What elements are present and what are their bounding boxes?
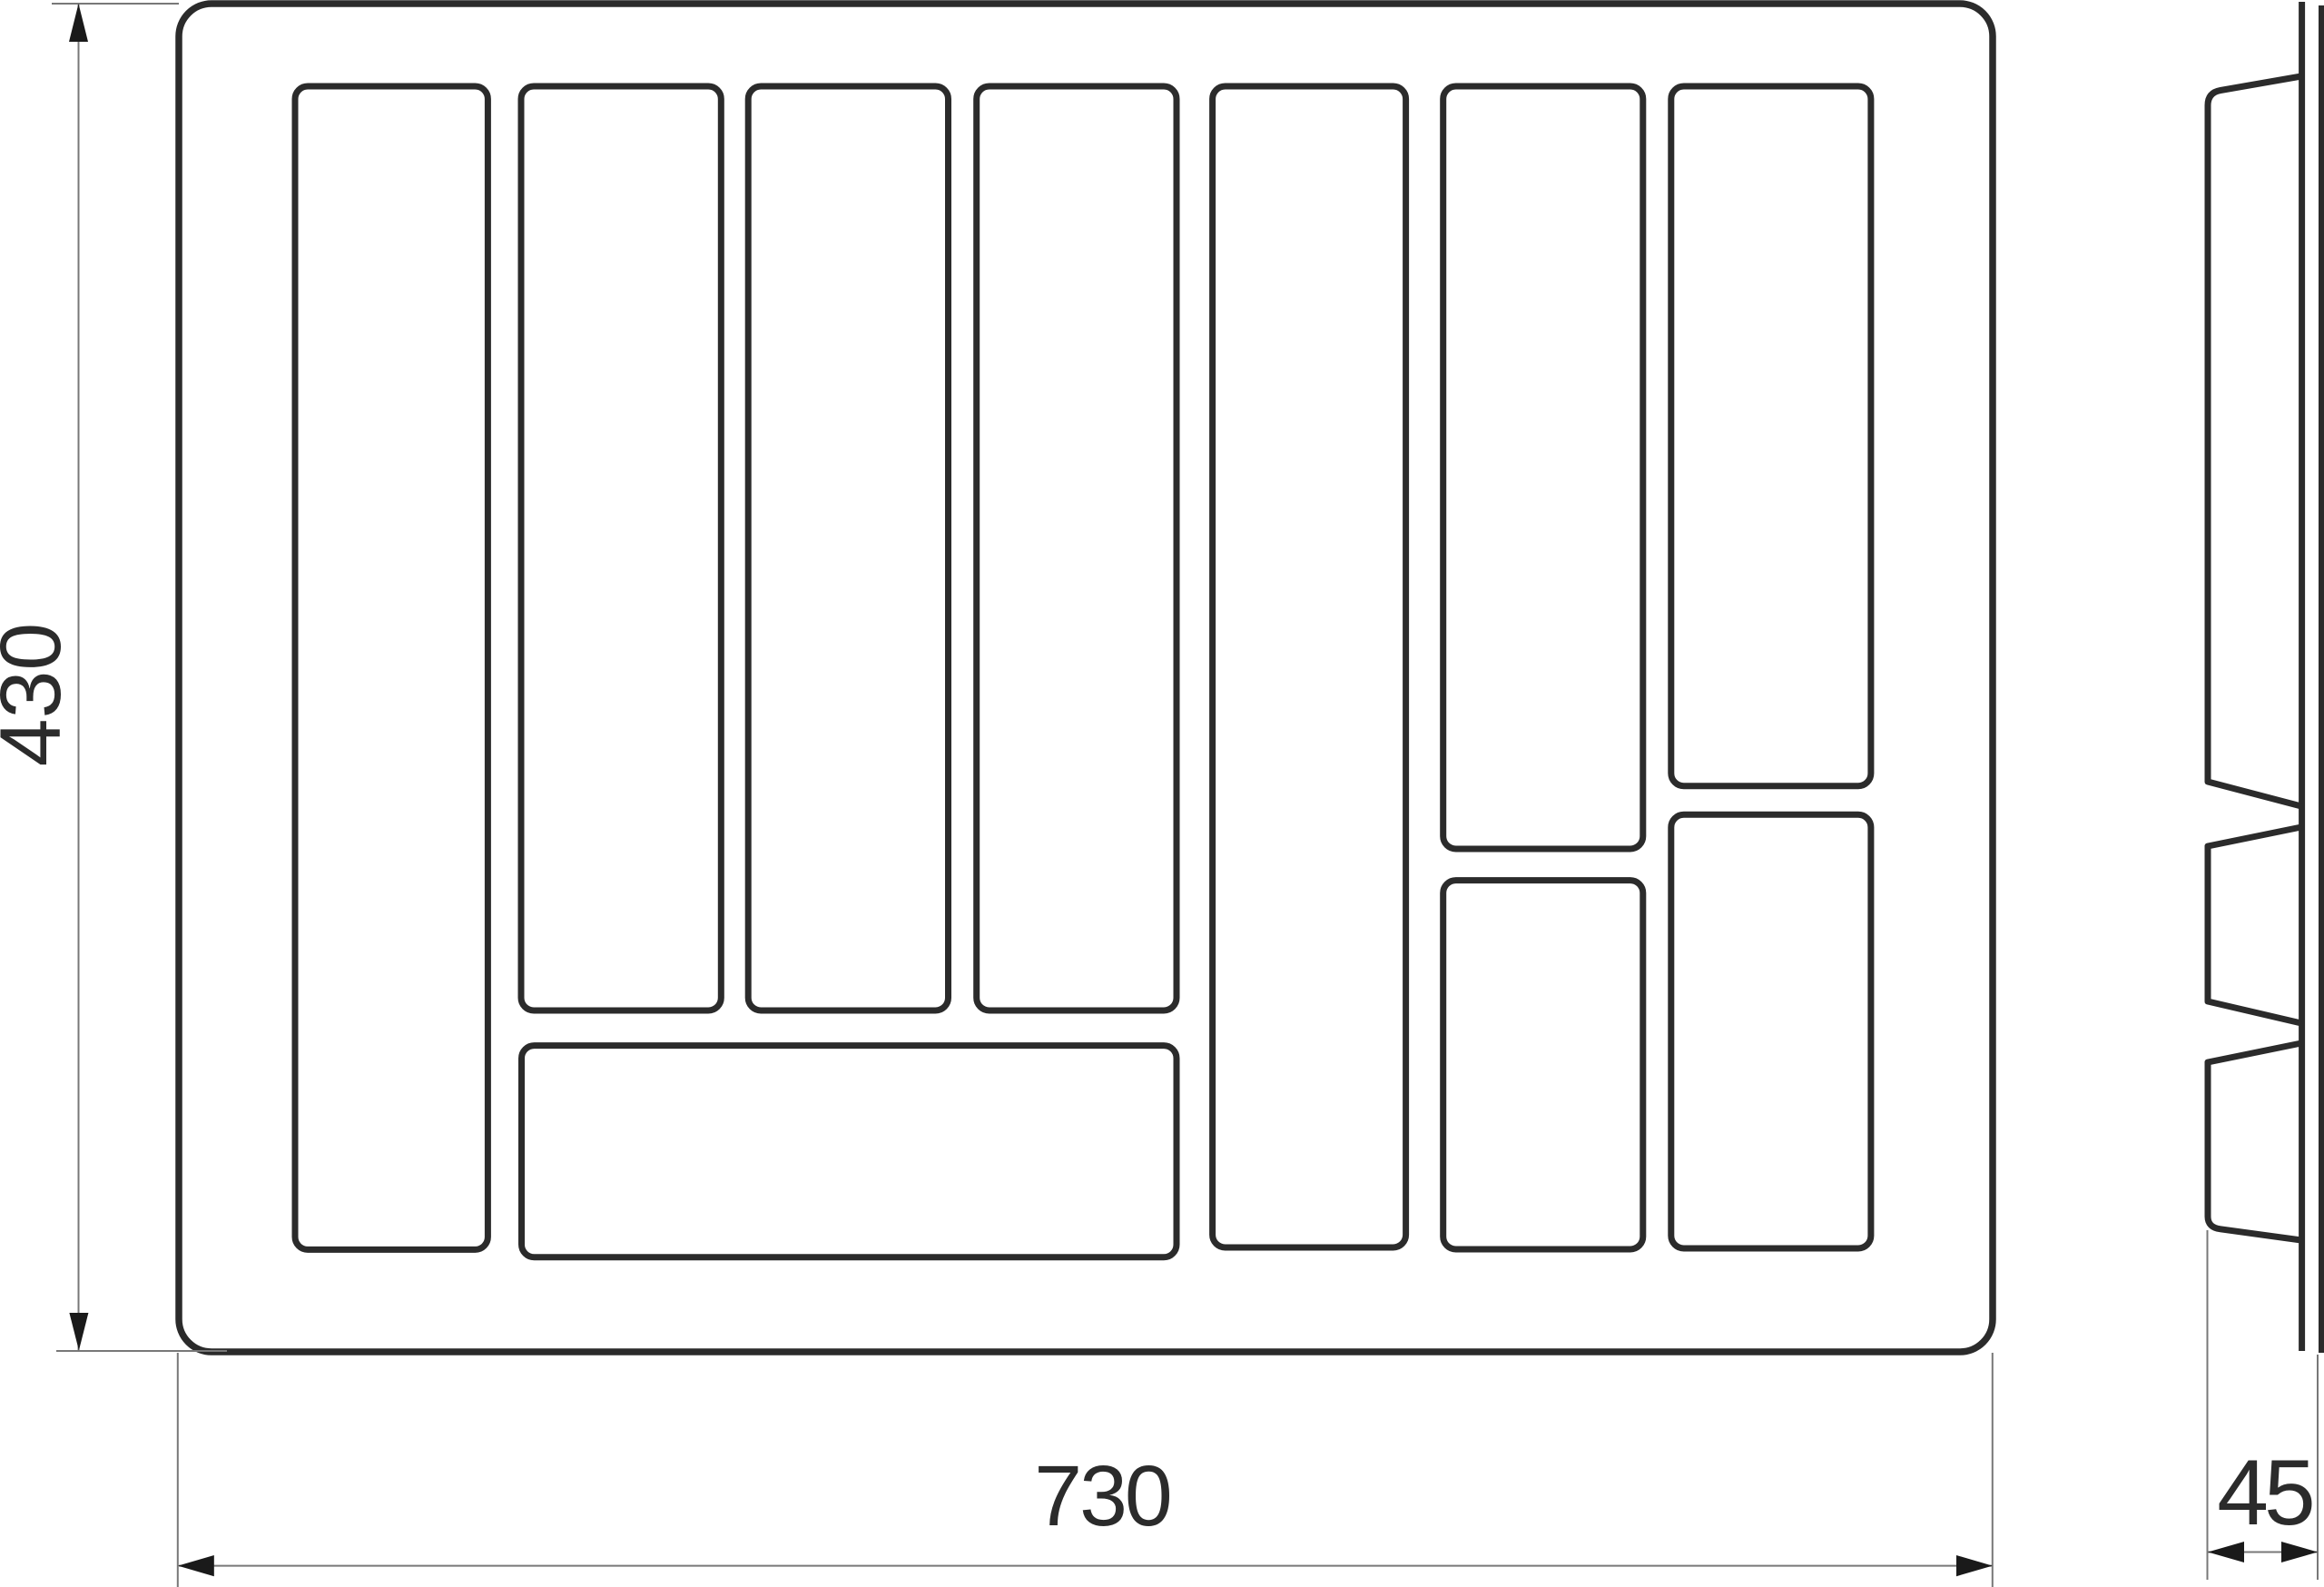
svg-text:730: 730 [1034,1448,1170,1544]
svg-text:430: 430 [0,623,79,767]
svg-text:45: 45 [2217,1441,2312,1544]
